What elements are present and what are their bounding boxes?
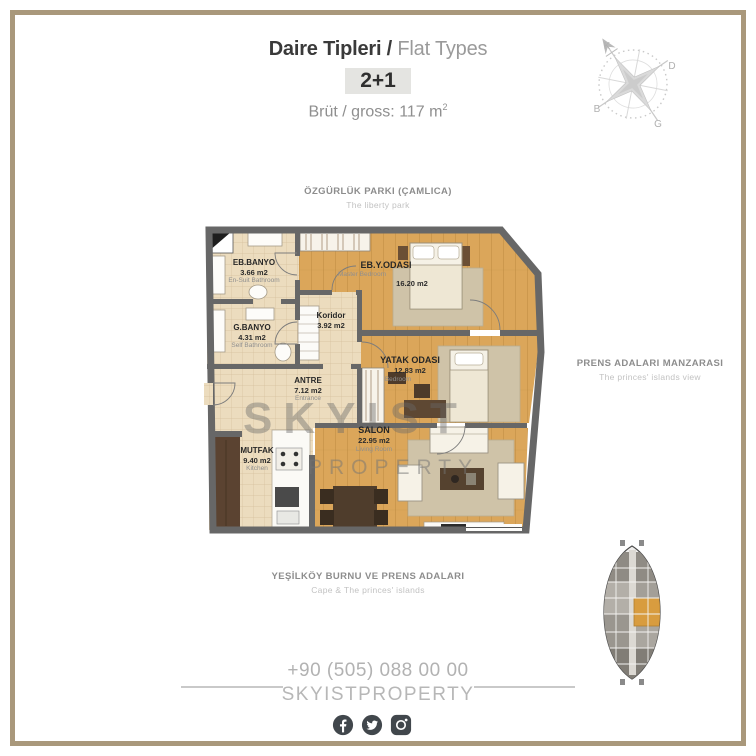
dining-chair xyxy=(374,510,388,525)
toilet xyxy=(249,285,267,299)
compass-letter-south: G xyxy=(654,119,662,130)
social-icons xyxy=(332,714,412,736)
context-label-right: PRENS ADALARI MANZARASI The princes' isl… xyxy=(552,357,748,383)
compass-lines xyxy=(580,22,692,144)
room-label-salon: SALON 22.95 m2 Living Room xyxy=(356,425,392,454)
highlighted-unit xyxy=(634,598,660,626)
room-label-koridor: Koridor 3.92 m2 xyxy=(317,311,346,330)
dining-table xyxy=(333,486,377,530)
twitter-icon[interactable] xyxy=(361,714,383,736)
room-label-mutfak: MUTFAK 9.40 m2 Kitchen xyxy=(240,446,273,474)
bath-sink xyxy=(246,308,274,320)
sink xyxy=(277,511,299,524)
title-turkish: Daire Tipleri / xyxy=(269,38,392,60)
context-label-top: ÖZGÜRLÜK PARKI (ÇAMLICA) The liberty par… xyxy=(0,185,756,211)
footer-divider-right xyxy=(474,686,575,688)
compass-rose: K D B G xyxy=(580,22,710,157)
title-english: Flat Types xyxy=(392,38,487,60)
armchair xyxy=(498,463,524,499)
compass-letter-west: B xyxy=(594,104,601,115)
compass-letter-north: K xyxy=(604,41,611,52)
footer-phone: +90 (505) 088 00 00 xyxy=(0,660,756,682)
dining-chair xyxy=(320,489,334,504)
oven xyxy=(275,487,299,507)
stove xyxy=(276,448,302,470)
toilet xyxy=(275,343,291,361)
room-label-antre: ANTRE 7.12 m2 Entrance xyxy=(294,376,322,404)
watermark-line2: PROPERTY xyxy=(308,456,479,480)
flat-type-badge: 2+1 xyxy=(345,68,411,94)
room-label-master-bedroom: EB.Y.ODASI Master Bedroom 16.20 m2 xyxy=(360,260,411,289)
nightstand xyxy=(398,246,408,260)
room-label-eb-banyo: EB.BANYO 3.66 m2 En-Suit Bathroom xyxy=(228,258,279,286)
room-label-g-banyo: G.BANYO 4.31 m2 Self Bathroom xyxy=(231,323,272,351)
flyer-page: Daire Tipleri / Flat Types 2+1 Brüt / gr… xyxy=(0,0,756,756)
dining-chair xyxy=(374,489,388,504)
dining-chair xyxy=(320,510,334,525)
footer-brand: SKYISTPROPERTY xyxy=(0,684,756,706)
compass-letter-east: D xyxy=(668,61,675,72)
master-wardrobe xyxy=(300,233,370,251)
footer-divider-left xyxy=(181,686,283,688)
facebook-icon[interactable] xyxy=(332,714,354,736)
room-label-bedroom: YATAK ODASI 12.83 m2 Bedroom xyxy=(380,355,440,384)
instagram-icon[interactable] xyxy=(390,714,412,736)
bath-sink xyxy=(248,233,282,246)
